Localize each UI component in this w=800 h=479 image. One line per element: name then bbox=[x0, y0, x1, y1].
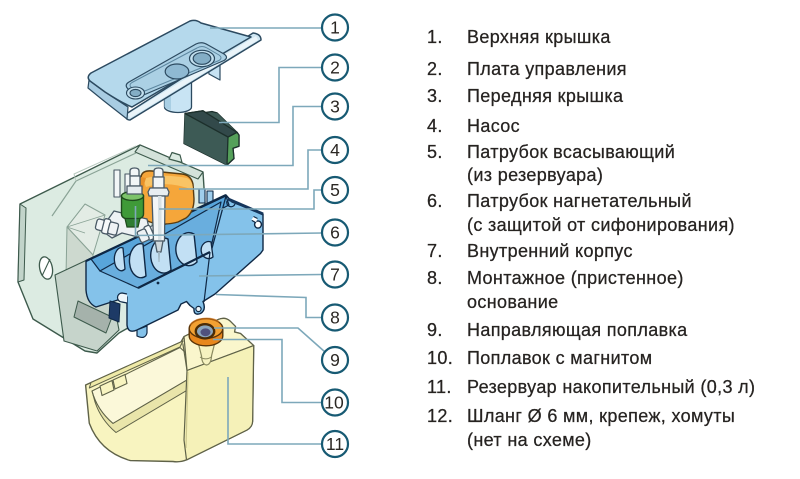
svg-text:4: 4 bbox=[330, 140, 340, 160]
svg-text:6: 6 bbox=[330, 223, 340, 243]
svg-text:10: 10 bbox=[324, 393, 344, 413]
svg-text:5: 5 bbox=[330, 180, 340, 200]
svg-text:3: 3 bbox=[330, 97, 340, 117]
svg-text:8: 8 bbox=[330, 308, 340, 328]
svg-text:9: 9 bbox=[330, 350, 340, 370]
svg-text:2: 2 bbox=[330, 58, 340, 78]
svg-text:1: 1 bbox=[330, 18, 340, 38]
svg-text:11: 11 bbox=[326, 434, 344, 454]
svg-text:7: 7 bbox=[330, 265, 340, 285]
